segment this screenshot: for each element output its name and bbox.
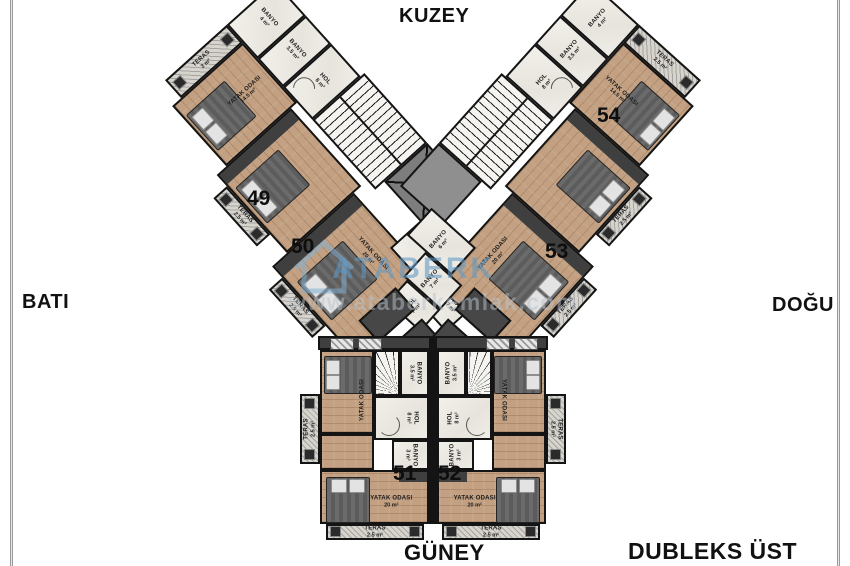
room-label: TERAS2.5 m²	[364, 525, 385, 538]
room-name: YATAK ODASI	[370, 495, 412, 502]
staircase-unit	[374, 350, 400, 396]
room-teras-side: TERAS2.5 m²	[300, 394, 320, 464]
room-name: TERAS	[480, 525, 501, 532]
room-area: 8 m²	[405, 411, 411, 424]
room-label: TERAS2.5 m²	[549, 418, 562, 439]
room-label: BANYO3.5 m²	[559, 38, 584, 64]
unit-number-49: 49	[247, 187, 270, 211]
room-teras-bottom: TERAS2.5 m²	[442, 524, 540, 540]
room-name: HOL	[411, 411, 418, 424]
unit-number-53: 53	[545, 240, 568, 264]
room-area: 2.5 m²	[549, 418, 555, 439]
room-label: BANYO6 m²	[429, 229, 454, 255]
room-label: BANYO3.5 m²	[445, 362, 458, 385]
room-label: YATAK ODASI20 m²	[454, 495, 496, 508]
compass-west: BATI	[22, 291, 69, 314]
room-name: YATAK ODASI	[454, 495, 496, 502]
room-hol-8: HOL8 m²	[437, 396, 492, 440]
room-label: YATAK ODASI20 m²	[370, 495, 412, 508]
floor-plan-page: KUZEY BATI DOĞU GÜNEY DUBLEKS ÜST KAT TE…	[0, 0, 850, 566]
room-teras-bottom: TERAS2.5 m²	[326, 524, 424, 540]
room-name: BANYO	[414, 362, 421, 385]
room-banyo-35: BANYO3.5 m²	[400, 350, 429, 396]
room-area: 3.5 m²	[408, 362, 414, 385]
room-area: 20 m²	[454, 502, 496, 508]
room-label: BANYO4 m²	[254, 7, 279, 33]
unit-number-50: 50	[291, 235, 314, 259]
room-banyo-35: BANYO3.5 m²	[437, 350, 466, 396]
unit-number-54: 54	[597, 104, 620, 128]
unit-number-52: 52	[438, 462, 461, 486]
corridor	[492, 434, 546, 470]
room-name: TERAS	[556, 418, 563, 439]
room-area: 3.5 m²	[452, 362, 458, 385]
wing-bottom: YATAK ODASI BANYO3.5 m² HOL8 m² BANYO3 m…	[318, 336, 548, 540]
bed	[496, 477, 540, 523]
window-hatch	[358, 338, 382, 350]
room-name: TERAS	[303, 418, 310, 439]
room-label: TERAS2.5 m²	[303, 418, 316, 439]
window-hatch	[330, 338, 354, 350]
room-area: 2.5 m²	[480, 532, 501, 538]
room-name: YATAK ODASI	[360, 379, 367, 421]
room-label: BANYO4 m²	[587, 7, 612, 33]
room-hol-8: HOL8 m²	[374, 396, 429, 440]
room-teras-side: TERAS2.5 m²	[546, 394, 566, 464]
room-bedroom-upper-51: YATAK ODASI	[320, 350, 374, 434]
room-label: HOL8 m²	[448, 411, 461, 424]
room-area: 8 m²	[455, 411, 461, 424]
staircase-unit	[466, 350, 492, 396]
room-label: YATAK ODASI	[360, 379, 367, 421]
room-bedroom-upper-52: YATAK ODASI	[492, 350, 546, 434]
window-hatch	[514, 338, 538, 350]
room-area: 2.5 m²	[310, 418, 316, 439]
room-label: BANYO7 m²	[420, 268, 445, 294]
bed	[326, 477, 370, 523]
plan-caption: DUBLEKS ÜST KAT	[628, 538, 850, 566]
compass-east: DOĞU	[772, 294, 834, 317]
corridor	[320, 434, 374, 470]
party-wall	[429, 336, 437, 524]
compass-south: GÜNEY	[404, 540, 485, 566]
photo-edge-line-left	[10, 0, 13, 566]
room-name: BANYO	[445, 362, 452, 385]
room-area: 2.5 m²	[364, 532, 385, 538]
window-hatch	[486, 338, 510, 350]
room-label: HOL8 m²	[405, 411, 418, 424]
room-label: BANYO3.5 m²	[282, 38, 307, 64]
room-name: YATAK ODASI	[500, 379, 507, 421]
compass-north: KUZEY	[399, 5, 469, 28]
room-area: 20 m²	[370, 502, 412, 508]
room-label: BANYO3.5 m²	[408, 362, 421, 385]
photo-edge-line-right	[837, 0, 840, 566]
unit-number-51: 51	[393, 462, 416, 486]
room-label: TERAS2.5 m²	[480, 525, 501, 538]
room-name: TERAS	[364, 525, 385, 532]
room-label: YATAK ODASI	[500, 379, 507, 421]
